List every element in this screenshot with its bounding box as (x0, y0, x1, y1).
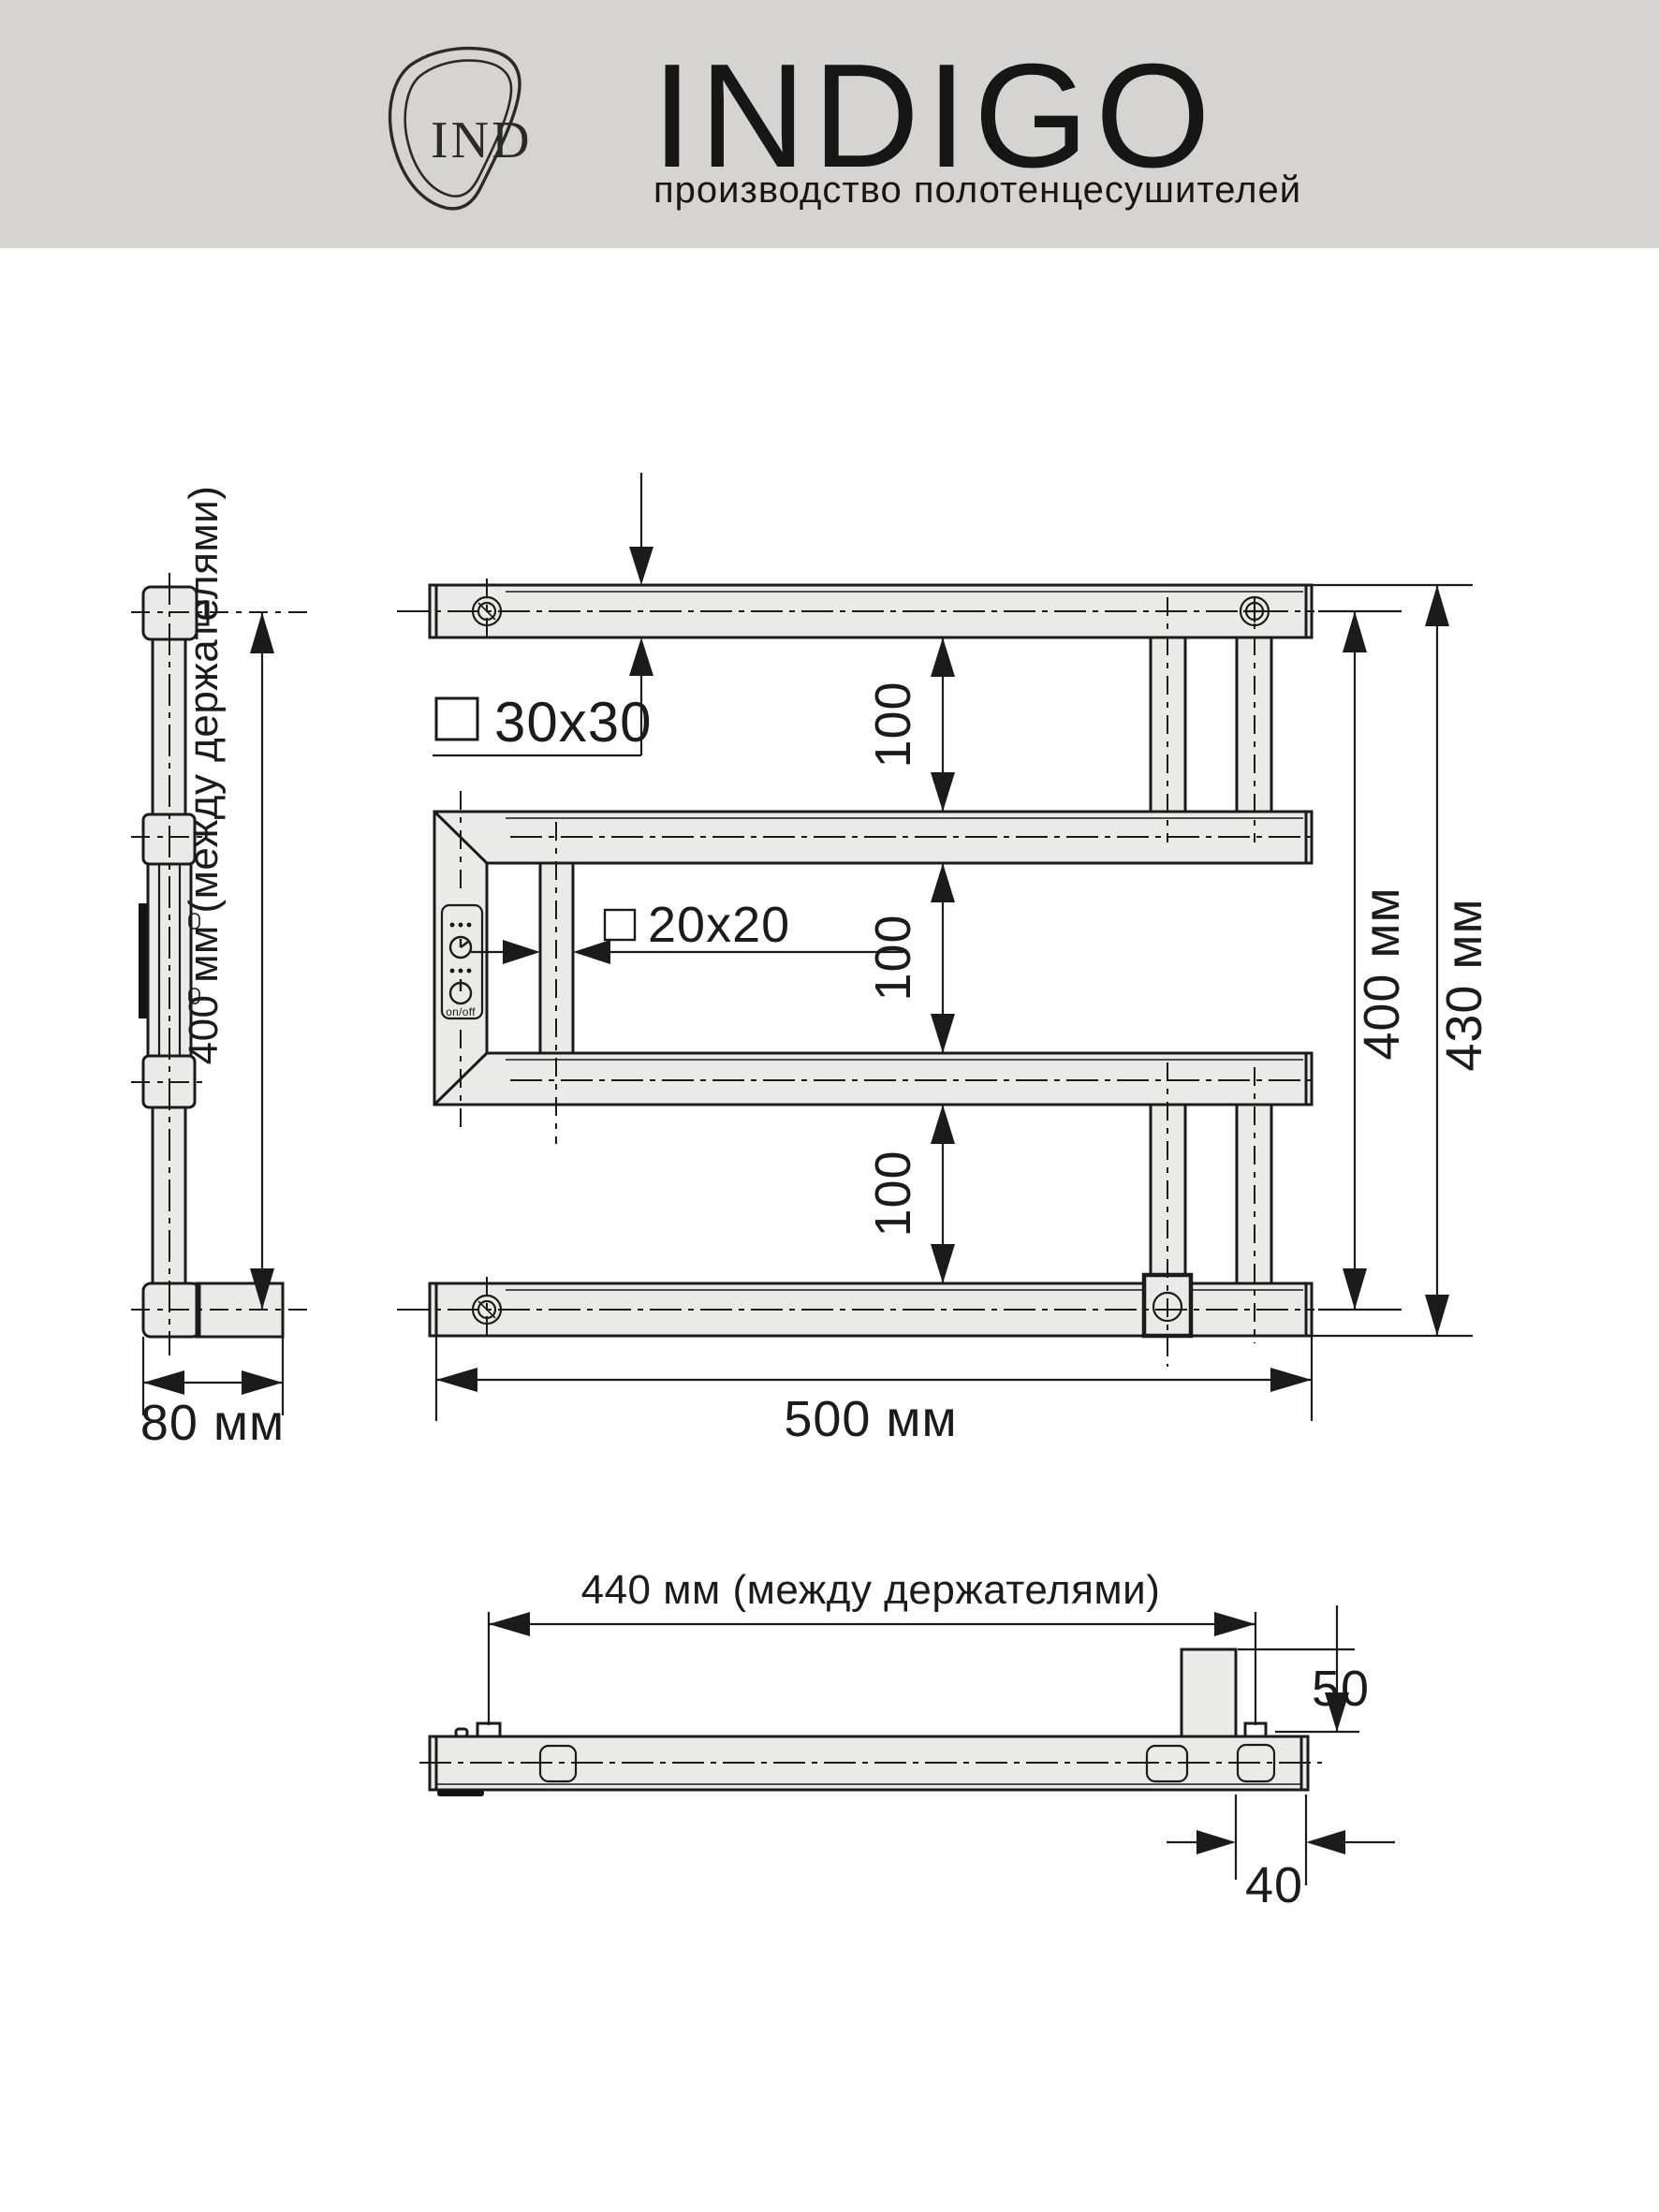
logo-monogram: IND (431, 111, 533, 169)
top-left-screw (456, 1729, 467, 1736)
top-left-holder-tab (477, 1723, 500, 1736)
dim-bracket-offset: 40 (1167, 1795, 1395, 1913)
bracket-offset-label: 40 (1245, 1857, 1303, 1913)
top-left-foot (437, 1790, 484, 1796)
profile-30x30-label: 30x30 (494, 691, 652, 754)
side-holders-label: 400 мм (между держателями) (181, 486, 227, 1065)
brand-subtitle: производство полотенцесушителей (653, 169, 1301, 211)
height-overall-label: 430 мм (1436, 898, 1492, 1071)
top-wall-bracket (1182, 1649, 1236, 1736)
header: IND INDIGO производство полотенцесушител… (0, 0, 1659, 248)
dim-side-holders: 400 мм (между держателями) (181, 486, 274, 1310)
dots-icon (450, 969, 472, 974)
side-view: 400 мм (между держателями) 80 мм (131, 486, 311, 1451)
dim-gap-3: 100 (865, 1105, 955, 1283)
front-view: on/off 30x30 (397, 473, 1492, 1447)
top-holders-label: 440 мм (между держателями) (581, 1567, 1161, 1613)
square-profile-icon (436, 698, 477, 740)
dim-bracket-height: 50 (1238, 1605, 1370, 1732)
drawing-page: IND INDIGO производство полотенцесушител… (0, 0, 1659, 2212)
gap-label-3: 100 (865, 1150, 921, 1237)
dim-height-axis: 400 мм (1318, 611, 1410, 1310)
width-label: 500 мм (784, 1391, 957, 1447)
square-profile-icon (605, 910, 635, 940)
dim-width: 500 мм (436, 1336, 1312, 1447)
gap-label-1: 100 (865, 681, 921, 768)
height-axis-label: 400 мм (1354, 886, 1410, 1060)
dim-side-depth: 80 мм (140, 1337, 285, 1451)
gap-label-2: 100 (865, 914, 921, 1001)
side-depth-label: 80 мм (140, 1395, 285, 1451)
top-right-holder-tab (1245, 1723, 1266, 1736)
dim-gap-1: 100 (865, 637, 955, 812)
dim-gap-2: 100 (865, 863, 955, 1053)
on-off-label: on/off (446, 1005, 476, 1018)
top-view: 440 мм (между держателями) 50 40 (419, 1567, 1395, 1913)
dim-top-holders: 440 мм (между держателями) (489, 1567, 1255, 1725)
dots-icon (450, 923, 472, 928)
leader-profile-20x20: 20x20 (471, 897, 903, 964)
bracket-height-label: 50 (1312, 1661, 1370, 1717)
side-control-panel (139, 903, 147, 1018)
profile-20x20-label: 20x20 (648, 897, 790, 953)
